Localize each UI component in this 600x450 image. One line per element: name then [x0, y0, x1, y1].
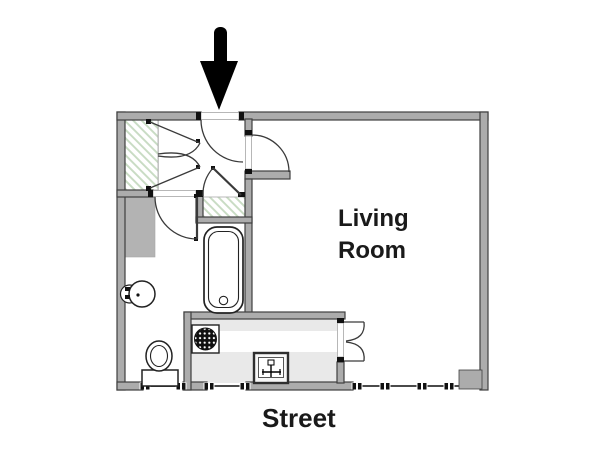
- wall-top-right: [239, 112, 488, 120]
- wall-right: [480, 112, 488, 390]
- hall-closet-hatch: [203, 197, 245, 217]
- duct: [125, 197, 155, 257]
- kitchen-pass-opening: [338, 323, 344, 357]
- bathroom-door-opening: [153, 191, 196, 197]
- wall-bathroom-door: [117, 190, 153, 197]
- wall-left: [117, 112, 125, 390]
- window-marker-icon: [444, 383, 455, 390]
- wall-hall-vertical: [245, 179, 252, 318]
- wall-kitchen-right: [337, 362, 344, 383]
- window-marker-icon: [417, 383, 428, 390]
- stove-icon: [192, 325, 219, 353]
- street-label: Street: [262, 403, 336, 433]
- wall-top-left: [117, 112, 201, 120]
- floor-plan-drawing: Living Room Street: [0, 0, 600, 450]
- living-room-label-line1: Living: [338, 205, 409, 232]
- bathtub-icon: [204, 227, 243, 313]
- window-marker-icon: [204, 383, 215, 390]
- wall-bottom-seg1: [117, 382, 143, 390]
- window-marker-icon: [380, 383, 391, 390]
- wall-closet-bottom: [196, 217, 252, 223]
- window-marker-icon: [240, 383, 251, 390]
- corner-pillar: [459, 370, 482, 389]
- wall-kitchen-top: [184, 312, 345, 319]
- entry-closet-hatch: [125, 120, 158, 190]
- wall-kitchen-left: [184, 312, 191, 390]
- living-room-label-line2: Room: [338, 237, 406, 264]
- entrance-opening: [201, 113, 239, 120]
- bathtub-drain: [219, 296, 227, 304]
- livingroom-door-opening: [246, 136, 252, 169]
- floor-plan: Living Room Street: [0, 0, 600, 450]
- window-marker-icon: [352, 383, 363, 390]
- kitchen-sink-icon: [254, 353, 288, 383]
